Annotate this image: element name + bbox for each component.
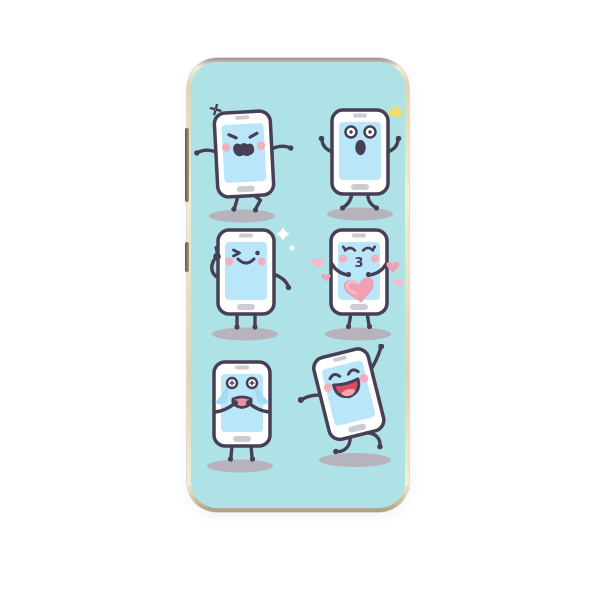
phone-character-wink bbox=[191, 222, 301, 344]
thumb bbox=[216, 248, 217, 253]
phone-character-angry bbox=[191, 104, 299, 226]
speaker-slot bbox=[353, 114, 367, 118]
sparkle-icon bbox=[276, 227, 296, 252]
cheek bbox=[258, 258, 266, 266]
home-button bbox=[350, 304, 368, 310]
antenna-notch-right bbox=[405, 486, 410, 491]
ground-shadow bbox=[325, 328, 391, 341]
hand bbox=[366, 272, 371, 277]
hand bbox=[232, 400, 238, 406]
speaker-slot bbox=[352, 234, 366, 238]
product-photo: { "product": { "type": "phone-case", "de… bbox=[0, 0, 600, 600]
kiss-mouth: 3 bbox=[354, 256, 363, 271]
hand bbox=[246, 400, 252, 406]
speaker-slot bbox=[235, 366, 249, 370]
phone-character-laughing bbox=[295, 344, 405, 470]
ground-shadow bbox=[327, 208, 393, 221]
speaker-slot bbox=[235, 115, 249, 120]
home-button bbox=[237, 304, 255, 310]
home-button bbox=[237, 185, 255, 192]
phone-character-surprised bbox=[305, 102, 405, 224]
volume-button bbox=[185, 128, 189, 202]
open-mouth bbox=[355, 140, 365, 155]
hand bbox=[346, 272, 351, 277]
ground-shadow bbox=[319, 453, 391, 467]
cheek bbox=[339, 255, 347, 263]
home-button bbox=[233, 436, 251, 442]
cheek bbox=[371, 255, 379, 263]
phone-screen bbox=[225, 242, 267, 300]
cheek bbox=[225, 258, 233, 266]
shock-burst-icon bbox=[387, 102, 405, 118]
speaker-slot bbox=[239, 234, 253, 238]
phone-case: 3 bbox=[187, 58, 409, 512]
case-back-print: 3 bbox=[191, 62, 405, 508]
power-button bbox=[185, 242, 189, 272]
phone-character-crying bbox=[191, 354, 297, 476]
ground-shadow bbox=[207, 460, 273, 473]
dot-eye bbox=[255, 251, 260, 256]
ground-shadow bbox=[209, 210, 275, 223]
arm bbox=[301, 394, 320, 400]
phone-character-kissing: 3 bbox=[304, 222, 405, 344]
ground-shadow bbox=[212, 328, 278, 341]
home-button bbox=[351, 184, 369, 190]
